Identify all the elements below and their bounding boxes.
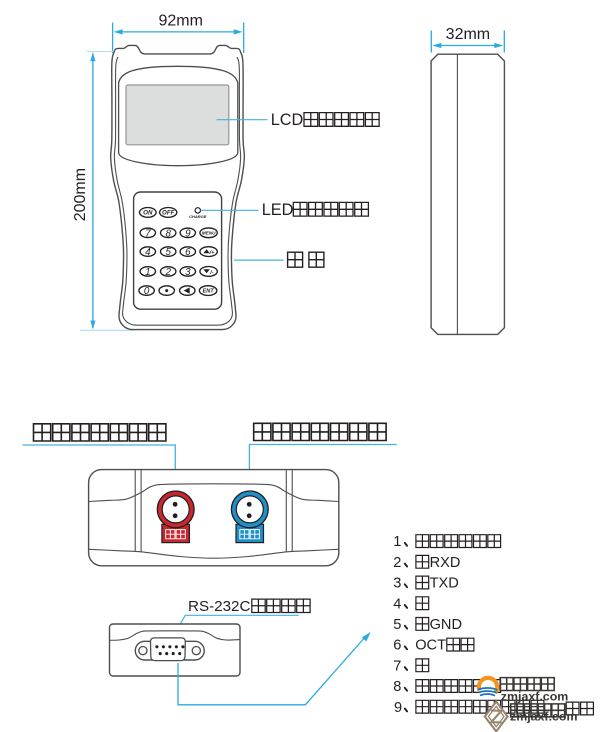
svg-text:5: 5: [393, 617, 401, 633]
svg-text:RXD: RXD: [430, 555, 461, 571]
svg-text:ENT: ENT: [203, 289, 215, 295]
svg-text:GND: GND: [430, 617, 462, 633]
svg-text:7: 7: [393, 658, 401, 674]
svg-text:RS-232C: RS-232C: [188, 598, 250, 615]
svg-text:3: 3: [185, 267, 191, 278]
svg-text:1: 1: [145, 267, 150, 278]
svg-text:zmjaxf.com: zmjaxf.com: [510, 709, 577, 723]
svg-text:MENU: MENU: [202, 231, 216, 236]
svg-text:8: 8: [393, 679, 401, 695]
svg-text:6: 6: [393, 638, 401, 654]
svg-text:2: 2: [164, 267, 171, 278]
svg-text:0: 0: [144, 286, 150, 297]
svg-text:/+: /+: [209, 250, 216, 256]
svg-text:92mm: 92mm: [158, 12, 202, 29]
svg-text:6: 6: [185, 247, 191, 258]
svg-text:1: 1: [393, 534, 401, 550]
svg-text:LCD: LCD: [271, 111, 304, 129]
svg-text:/-: /-: [209, 270, 214, 276]
svg-text:4: 4: [145, 247, 151, 258]
svg-text:zmjaxf.com: zmjaxf.com: [501, 690, 568, 704]
svg-text:32mm: 32mm: [446, 26, 490, 43]
svg-text:7: 7: [145, 228, 151, 239]
svg-text:TXD: TXD: [430, 576, 459, 592]
svg-text:3: 3: [393, 576, 401, 592]
svg-text:LED: LED: [262, 201, 294, 219]
svg-text:4: 4: [393, 596, 401, 612]
svg-text:5: 5: [165, 247, 171, 258]
svg-text:9: 9: [394, 700, 402, 716]
svg-text:8: 8: [165, 228, 171, 239]
svg-text:9: 9: [185, 228, 191, 239]
svg-text:200mm: 200mm: [72, 168, 89, 221]
svg-text:2: 2: [393, 555, 401, 571]
svg-text:CHARGE: CHARGE: [189, 214, 207, 219]
svg-text:OCT: OCT: [415, 638, 446, 654]
svg-text:ON: ON: [143, 210, 153, 217]
svg-text:OFF: OFF: [162, 210, 175, 217]
